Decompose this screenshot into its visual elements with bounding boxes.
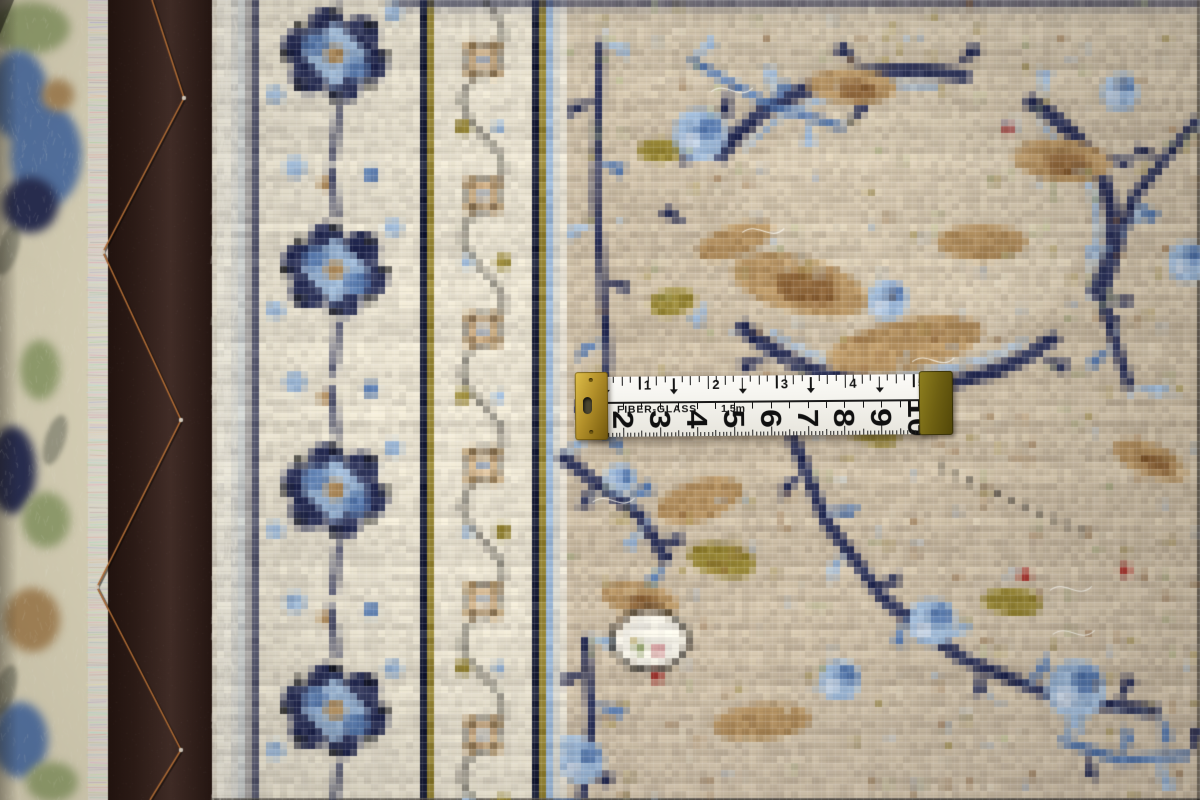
mm-tick bbox=[763, 432, 764, 436]
inch-tick bbox=[844, 375, 846, 388]
mm-tick bbox=[837, 431, 838, 435]
mm-tick bbox=[664, 432, 665, 436]
sub-inch-tick bbox=[853, 375, 854, 381]
mm-tick bbox=[789, 429, 790, 436]
mm-tick bbox=[834, 431, 835, 435]
sub-inch-tick bbox=[699, 376, 700, 382]
tape-right-clip bbox=[919, 371, 954, 435]
mm-tick bbox=[852, 431, 853, 435]
mm-tick bbox=[845, 426, 846, 435]
mm-tick bbox=[612, 433, 613, 437]
mm-tick bbox=[856, 431, 857, 435]
mm-tick bbox=[822, 431, 823, 435]
mm-tick bbox=[712, 432, 713, 436]
mm-tick bbox=[616, 433, 617, 437]
mm-tick bbox=[730, 432, 731, 436]
photo-stage: FIBER-GLASS 1.5m 123452345678910 bbox=[0, 0, 1200, 800]
mm-tick bbox=[623, 428, 624, 437]
sub-inch-tick bbox=[630, 377, 631, 383]
mm-tick bbox=[904, 430, 905, 434]
mm-tick bbox=[642, 430, 643, 437]
mm-tick bbox=[708, 432, 709, 436]
mm-tick bbox=[911, 430, 912, 434]
mm-tick bbox=[793, 431, 794, 435]
mm-tick bbox=[682, 432, 683, 436]
mm-tick bbox=[808, 426, 809, 435]
half-inch-arrow bbox=[673, 378, 675, 389]
inch-tick bbox=[913, 374, 915, 387]
sub-inch-tick bbox=[887, 374, 888, 380]
mm-tick bbox=[826, 428, 827, 435]
mm-tick bbox=[885, 430, 886, 434]
mm-tick bbox=[671, 432, 672, 436]
mm-tick bbox=[723, 432, 724, 436]
mm-tick bbox=[848, 431, 849, 435]
half-inch-arrow bbox=[810, 377, 812, 388]
half-inch-arrow-head bbox=[738, 389, 746, 394]
sub-inch-tick bbox=[656, 376, 657, 385]
sub-inch-tick bbox=[801, 375, 802, 381]
tape-left-clip bbox=[575, 372, 609, 440]
mm-tick bbox=[775, 431, 776, 435]
inch-tick bbox=[639, 377, 641, 390]
sub-inch-tick bbox=[750, 376, 751, 382]
mm-tick bbox=[819, 431, 820, 435]
mm-tick bbox=[741, 432, 742, 436]
mm-tick bbox=[649, 433, 650, 437]
sub-inch-tick bbox=[784, 375, 785, 381]
mm-tick bbox=[863, 428, 864, 435]
mm-tick bbox=[704, 432, 705, 436]
mm-tick bbox=[915, 430, 916, 434]
clip-rivet bbox=[589, 378, 593, 382]
mm-tick bbox=[697, 427, 698, 436]
mm-tick bbox=[874, 431, 875, 435]
mm-tick bbox=[786, 431, 787, 435]
sub-inch-tick bbox=[827, 375, 828, 384]
mm-tick bbox=[627, 433, 628, 437]
mm-tick bbox=[656, 432, 657, 436]
half-inch-arrow-head bbox=[670, 389, 678, 394]
sub-inch-tick bbox=[682, 376, 683, 382]
sub-inch-tick bbox=[870, 375, 871, 381]
mm-tick bbox=[701, 432, 702, 436]
sub-inch-tick bbox=[904, 374, 905, 380]
mm-tick bbox=[749, 432, 750, 436]
tape-body: FIBER-GLASS 1.5m 123452345678910 bbox=[593, 374, 929, 437]
sub-inch-tick bbox=[716, 376, 717, 382]
sub-inch-tick bbox=[622, 377, 623, 386]
half-inch-arrow bbox=[742, 378, 744, 389]
sub-inch-tick bbox=[724, 376, 725, 385]
measuring-tape: FIBER-GLASS 1.5m 123452345678910 bbox=[575, 364, 954, 445]
mm-tick bbox=[896, 430, 897, 434]
sub-inch-tick bbox=[613, 377, 614, 383]
mm-tick bbox=[771, 426, 772, 435]
inch-tick bbox=[707, 376, 709, 389]
half-inch-arrow-head bbox=[807, 388, 815, 393]
mm-tick bbox=[727, 432, 728, 436]
mm-tick bbox=[867, 431, 868, 435]
mm-tick bbox=[608, 433, 609, 437]
mm-tick bbox=[734, 427, 735, 436]
mm-tick bbox=[752, 429, 753, 436]
mm-tick bbox=[889, 430, 890, 434]
mm-tick bbox=[745, 432, 746, 436]
sub-inch-tick bbox=[733, 376, 734, 382]
mm-tick bbox=[881, 425, 882, 434]
mm-tick bbox=[719, 432, 720, 436]
mm-tick bbox=[690, 432, 691, 436]
sub-inch-tick bbox=[861, 375, 862, 384]
mm-tick bbox=[638, 433, 639, 437]
mm-tick bbox=[756, 432, 757, 436]
mm-tick bbox=[667, 432, 668, 436]
sub-inch-tick bbox=[690, 376, 691, 385]
mm-tick bbox=[675, 432, 676, 436]
mm-tick bbox=[679, 430, 680, 437]
mm-tick bbox=[804, 431, 805, 435]
sub-inch-tick bbox=[793, 375, 794, 384]
mm-tick bbox=[660, 427, 661, 436]
sub-inch-tick bbox=[759, 376, 760, 385]
mm-tick bbox=[653, 432, 654, 436]
clip-rivet bbox=[589, 430, 593, 434]
sub-inch-tick bbox=[836, 375, 837, 381]
mm-tick bbox=[738, 432, 739, 436]
mm-tick bbox=[715, 429, 716, 436]
mm-tick bbox=[815, 431, 816, 435]
mm-tick bbox=[782, 431, 783, 435]
mm-tick bbox=[686, 432, 687, 436]
sub-inch-tick bbox=[819, 375, 820, 381]
mm-tick bbox=[870, 431, 871, 435]
tape-clip-hole bbox=[583, 397, 592, 414]
mm-tick bbox=[900, 428, 901, 435]
mm-tick bbox=[800, 431, 801, 435]
mm-tick bbox=[841, 431, 842, 435]
half-inch-arrow-head bbox=[875, 387, 883, 392]
sub-inch-tick bbox=[896, 374, 897, 383]
mm-tick bbox=[907, 430, 908, 434]
half-inch-arrow bbox=[879, 377, 881, 388]
mm-tick bbox=[859, 431, 860, 435]
mm-tick bbox=[645, 433, 646, 437]
mm-tick bbox=[830, 431, 831, 435]
mm-tick bbox=[631, 433, 632, 437]
mm-tick bbox=[797, 431, 798, 435]
sub-inch-tick bbox=[664, 376, 665, 382]
mm-tick bbox=[693, 432, 694, 436]
sub-inch-tick bbox=[647, 377, 648, 383]
mm-tick bbox=[893, 430, 894, 434]
mm-tick bbox=[778, 431, 779, 435]
sub-inch-tick bbox=[767, 375, 768, 381]
inch-tick bbox=[776, 375, 778, 388]
mm-tick bbox=[620, 433, 621, 437]
mm-tick bbox=[767, 431, 768, 435]
mm-tick bbox=[634, 433, 635, 437]
mm-tick bbox=[878, 431, 879, 435]
mm-tick bbox=[811, 431, 812, 435]
mm-tick bbox=[760, 432, 761, 436]
